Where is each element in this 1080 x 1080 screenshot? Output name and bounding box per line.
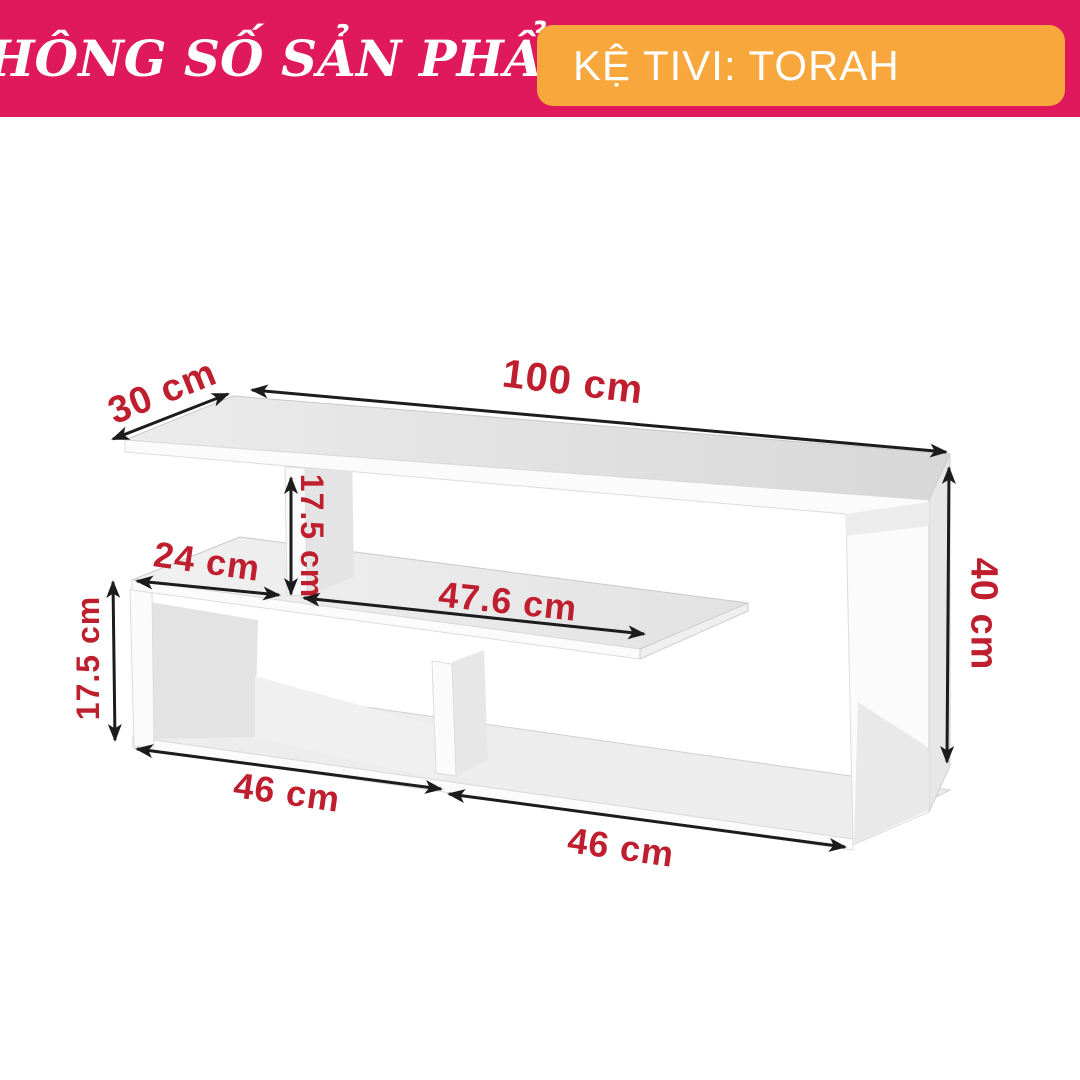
dim-right-compartment-label: 46 cm bbox=[565, 819, 677, 875]
dim-left-opening-label: 17.5 cm bbox=[70, 596, 106, 720]
product-badge: KỆ TIVI: TORAH bbox=[537, 25, 1065, 106]
page-title: THÔNG SỐ SẢN PHẨM bbox=[18, 0, 530, 117]
dim-upper-divider-label: 17.5 cm bbox=[294, 474, 330, 598]
header-banner: THÔNG SỐ SẢN PHẨM KỆ TIVI: TORAH bbox=[0, 0, 1080, 117]
left-wall-inner-face bbox=[150, 602, 258, 739]
dim-left-opening-arrow bbox=[113, 582, 115, 740]
tv-stand-diagram: 30 cm 100 cm 17.5 cm 24 cm 47.6 cm 40 cm… bbox=[0, 0, 1080, 1080]
left-wall-front-face bbox=[130, 589, 154, 748]
center-divider-front-face bbox=[432, 661, 456, 776]
dim-height-arrow bbox=[947, 468, 949, 762]
center-divider-side-face bbox=[452, 650, 488, 776]
dim-height-label: 40 cm bbox=[963, 558, 1005, 671]
product-spec-page: 30 cm 100 cm 17.5 cm 24 cm 47.6 cm 40 cm… bbox=[0, 0, 1080, 1080]
dim-width-label: 100 cm bbox=[500, 352, 646, 413]
